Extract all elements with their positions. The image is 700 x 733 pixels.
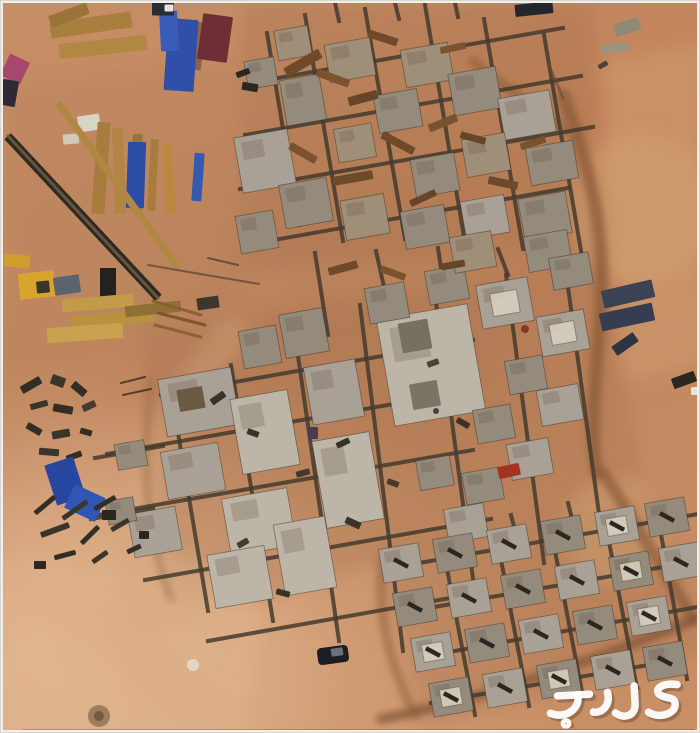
scene-svg (3, 3, 697, 730)
aerial-construction-photo: حراج (3, 3, 697, 730)
haraj-logo-icon (536, 676, 690, 730)
haraj-watermark: حراج (537, 680, 689, 726)
photo-frame: حراج (0, 0, 700, 733)
